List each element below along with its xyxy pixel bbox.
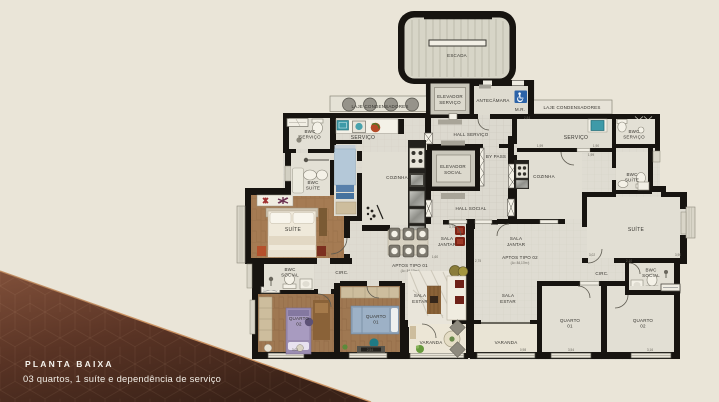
svg-text:SERVIÇO: SERVIÇO xyxy=(351,135,376,141)
svg-text:2,10: 2,10 xyxy=(626,259,632,263)
svg-text:1,99: 1,99 xyxy=(588,153,594,157)
svg-text:SERVIÇO: SERVIÇO xyxy=(299,135,321,140)
svg-text:SERVIÇO: SERVIÇO xyxy=(623,135,645,140)
svg-text:ANTECÂMARA: ANTECÂMARA xyxy=(476,97,509,103)
svg-text:ESCADA: ESCADA xyxy=(447,53,467,58)
svg-text:CIRC.: CIRC. xyxy=(335,270,348,275)
svg-text:SALA: SALA xyxy=(502,293,514,298)
svg-text:2,75: 2,75 xyxy=(475,259,481,263)
svg-text:BWC: BWC xyxy=(628,129,640,134)
svg-text:SOCIAL: SOCIAL xyxy=(444,170,462,175)
svg-text:1,90: 1,90 xyxy=(593,144,599,148)
svg-text:QUARTO: QUARTO xyxy=(366,314,387,319)
svg-text:SERVIÇO: SERVIÇO xyxy=(439,100,461,105)
svg-text:COZINHA: COZINHA xyxy=(533,174,555,179)
svg-text:APTOS TIPO 02: APTOS TIPO 02 xyxy=(502,255,538,260)
svg-text:SUÍTE: SUÍTE xyxy=(625,177,639,183)
svg-text:02: 02 xyxy=(296,322,302,327)
svg-text:LAJE CONDENSADORES: LAJE CONDENSADORES xyxy=(543,105,600,110)
svg-text:SALA: SALA xyxy=(441,236,453,241)
svg-text:ELEVADOR: ELEVADOR xyxy=(437,94,463,99)
svg-text:BWC: BWC xyxy=(626,172,638,177)
svg-text:(A= 84,17m²): (A= 84,17m²) xyxy=(511,261,530,265)
svg-text:PLANTA BAIXA: PLANTA BAIXA xyxy=(25,359,114,369)
svg-text:QUARTO: QUARTO xyxy=(289,316,310,321)
svg-text:BWC: BWC xyxy=(307,180,319,185)
svg-text:BWC: BWC xyxy=(304,129,316,134)
svg-text:ESTAR: ESTAR xyxy=(500,299,516,304)
svg-text:VARANDA: VARANDA xyxy=(495,340,518,345)
svg-text:3,02: 3,02 xyxy=(589,253,595,257)
svg-text:3,16: 3,16 xyxy=(647,348,653,352)
svg-text:BWC: BWC xyxy=(284,267,296,272)
svg-text:JANTAR: JANTAR xyxy=(507,242,526,247)
svg-text:SALA: SALA xyxy=(510,236,522,241)
svg-text:1,99: 1,99 xyxy=(537,144,543,148)
svg-text:BY PASS: BY PASS xyxy=(486,154,506,159)
svg-text:M.R.: M.R. xyxy=(515,107,525,112)
svg-text:SALA: SALA xyxy=(414,293,426,298)
svg-text:QUARTO: QUARTO xyxy=(633,318,654,323)
svg-text:SOCIAL: SOCIAL xyxy=(281,273,299,278)
svg-text:01: 01 xyxy=(373,320,379,325)
svg-text:SUÍTE: SUÍTE xyxy=(306,185,320,191)
svg-text:ESTAR: ESTAR xyxy=(412,299,428,304)
svg-text:1,60: 1,60 xyxy=(432,255,438,259)
svg-text:2,54: 2,54 xyxy=(367,348,373,352)
svg-text:LAJE CONDENSADORES: LAJE CONDENSADORES xyxy=(351,104,408,109)
svg-text:HALL SERVIÇO: HALL SERVIÇO xyxy=(454,132,489,137)
svg-text:02: 02 xyxy=(640,324,646,329)
svg-text:SUÍTE: SUÍTE xyxy=(628,226,645,233)
svg-text:03 quartos, 1 suíte e dependên: 03 quartos, 1 suíte e dependência de ser… xyxy=(23,373,221,384)
svg-text:ELEVADOR: ELEVADOR xyxy=(440,164,466,169)
svg-text:3,76: 3,76 xyxy=(449,225,455,229)
svg-text:3,02: 3,02 xyxy=(292,348,298,352)
svg-text:APTOS TIPO 01: APTOS TIPO 01 xyxy=(392,263,428,268)
svg-text:0,98: 0,98 xyxy=(520,348,526,352)
svg-text:3,54: 3,54 xyxy=(568,348,574,352)
svg-text:HALL SOCIAL: HALL SOCIAL xyxy=(455,206,486,211)
svg-text:01: 01 xyxy=(567,324,573,329)
svg-text:SERVIÇO: SERVIÇO xyxy=(564,135,589,141)
svg-text:VARANDA: VARANDA xyxy=(420,340,443,345)
svg-text:QUARTO: QUARTO xyxy=(560,318,581,323)
svg-text:2,84: 2,84 xyxy=(524,116,530,120)
svg-text:COZINHA: COZINHA xyxy=(386,175,408,180)
svg-text:BWC: BWC xyxy=(645,268,657,273)
svg-text:JANTAR: JANTAR xyxy=(438,242,457,247)
svg-text:SUÍTE: SUÍTE xyxy=(285,226,302,233)
svg-text:SOCIAL: SOCIAL xyxy=(642,273,660,278)
svg-text:CIRC.: CIRC. xyxy=(595,271,608,276)
svg-text:3,90: 3,90 xyxy=(675,253,681,257)
